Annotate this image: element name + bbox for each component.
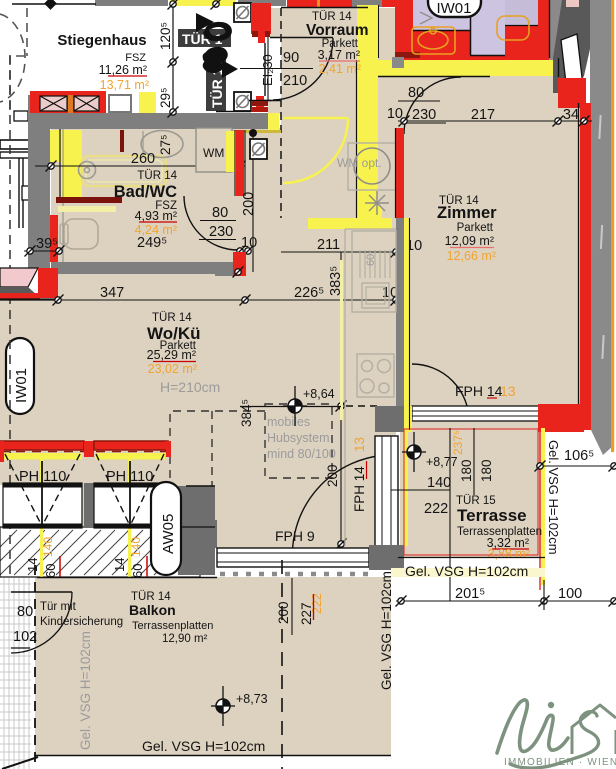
svg-text:EI₂30: EI₂30 bbox=[260, 54, 275, 86]
svg-text:10: 10 bbox=[241, 235, 257, 251]
svg-text:230: 230 bbox=[209, 224, 233, 240]
svg-text:Parkett: Parkett bbox=[457, 222, 494, 234]
svg-text:Hubsystem: Hubsystem bbox=[267, 431, 330, 445]
svg-text:Bad/WC: Bad/WC bbox=[114, 183, 177, 201]
svg-text:Zimmer: Zimmer bbox=[437, 204, 497, 222]
svg-text:211: 211 bbox=[317, 237, 340, 253]
svg-text:Vorraum: Vorraum bbox=[306, 22, 369, 39]
svg-text:Kindersicherung: Kindersicherung bbox=[40, 616, 123, 628]
svg-text:222: 222 bbox=[310, 593, 324, 614]
svg-text:90: 90 bbox=[283, 50, 299, 66]
svg-text:Gel. VSG H=102cm: Gel. VSG H=102cm bbox=[546, 440, 561, 555]
svg-text:12,66 m²: 12,66 m² bbox=[447, 249, 496, 263]
svg-text:27⁵: 27⁵ bbox=[158, 134, 173, 155]
svg-text:39⁵: 39⁵ bbox=[36, 236, 58, 252]
svg-text:13,71 m²: 13,71 m² bbox=[100, 78, 149, 92]
svg-text:TÜR 14: TÜR 14 bbox=[152, 312, 192, 324]
svg-text:+8,64: +8,64 bbox=[303, 387, 335, 401]
svg-text:60: 60 bbox=[43, 564, 58, 578]
svg-text:80: 80 bbox=[212, 205, 228, 221]
svg-text:140: 140 bbox=[427, 475, 451, 491]
svg-text:100: 100 bbox=[558, 586, 582, 602]
svg-text:102: 102 bbox=[13, 629, 37, 645]
svg-text:FPH 9: FPH 9 bbox=[275, 528, 315, 544]
svg-text:201⁵: 201⁵ bbox=[455, 586, 485, 602]
svg-text:12,90 m²: 12,90 m² bbox=[162, 633, 208, 645]
svg-text:180: 180 bbox=[479, 459, 494, 482]
svg-text:222: 222 bbox=[424, 501, 448, 517]
svg-text:FPH 14: FPH 14 bbox=[455, 383, 503, 399]
svg-text:IW01: IW01 bbox=[13, 368, 30, 403]
svg-text:3,17 m²: 3,17 m² bbox=[318, 48, 360, 62]
svg-text:14: 14 bbox=[25, 558, 40, 572]
svg-text:Tür mit: Tür mit bbox=[40, 601, 77, 613]
svg-text:60: 60 bbox=[365, 254, 377, 266]
svg-text:29⁵: 29⁵ bbox=[158, 87, 173, 108]
svg-text:AW05: AW05 bbox=[160, 514, 177, 554]
svg-text:Gel. VSG H=102cm: Gel. VSG H=102cm bbox=[78, 631, 93, 750]
svg-text:60: 60 bbox=[130, 564, 145, 578]
svg-text:FPH 14: FPH 14 bbox=[352, 466, 367, 512]
svg-text:IMMOBILIEN · WIEN: IMMOBILIEN · WIEN bbox=[504, 757, 616, 768]
svg-text:H=210cm: H=210cm bbox=[160, 379, 220, 395]
svg-text:11,26 m²: 11,26 m² bbox=[99, 63, 147, 77]
svg-text:237⁵: 237⁵ bbox=[451, 430, 465, 455]
svg-text:Terrassenplatten: Terrassenplatten bbox=[132, 620, 213, 632]
svg-text:Terrasse: Terrasse bbox=[457, 506, 527, 525]
svg-text:200: 200 bbox=[276, 601, 291, 624]
svg-text:13: 13 bbox=[352, 437, 367, 452]
svg-text:12,09 m²: 12,09 m² bbox=[445, 234, 494, 248]
svg-text:217: 217 bbox=[471, 107, 495, 123]
svg-text:Gel. VSG H=102cm: Gel. VSG H=102cm bbox=[405, 563, 528, 579]
svg-text:TÜR 14: TÜR 14 bbox=[137, 170, 177, 182]
svg-text:80: 80 bbox=[408, 85, 424, 101]
svg-text:3,88 m²: 3,88 m² bbox=[488, 547, 530, 561]
svg-text:mobiles: mobiles bbox=[267, 415, 310, 429]
svg-text:13: 13 bbox=[500, 383, 516, 399]
svg-text:Balkon: Balkon bbox=[129, 602, 176, 618]
svg-text:25,29 m²: 25,29 m² bbox=[147, 348, 196, 362]
svg-text:PH 110: PH 110 bbox=[106, 469, 153, 485]
svg-text:106⁵: 106⁵ bbox=[564, 448, 594, 464]
svg-text:200: 200 bbox=[325, 464, 340, 487]
svg-text:140: 140 bbox=[129, 537, 143, 557]
svg-text:210: 210 bbox=[283, 73, 307, 89]
svg-text:347: 347 bbox=[100, 285, 124, 301]
svg-text:200: 200 bbox=[241, 192, 257, 216]
svg-text:4,93 m²: 4,93 m² bbox=[135, 209, 177, 223]
svg-text:249⁵: 249⁵ bbox=[137, 235, 167, 251]
svg-text:PH 110: PH 110 bbox=[19, 469, 66, 485]
svg-text:WM: WM bbox=[203, 146, 224, 160]
svg-text:180: 180 bbox=[459, 459, 474, 482]
svg-text:mind 80/100: mind 80/100 bbox=[267, 447, 336, 461]
svg-text:Stiegenhaus: Stiegenhaus bbox=[57, 32, 146, 49]
svg-text:23,02 m²: 23,02 m² bbox=[148, 362, 197, 376]
svg-text:140: 140 bbox=[41, 537, 55, 557]
svg-text:2,41 m²: 2,41 m² bbox=[319, 62, 361, 76]
svg-text:WM opt.: WM opt. bbox=[337, 156, 382, 170]
svg-text:Gel. VSG H=102cm: Gel. VSG H=102cm bbox=[379, 571, 394, 690]
svg-text:260: 260 bbox=[131, 151, 155, 167]
svg-text:384⁵: 384⁵ bbox=[239, 399, 254, 427]
svg-text:+8,73: +8,73 bbox=[236, 692, 268, 706]
svg-text:34: 34 bbox=[563, 107, 579, 123]
svg-text:Gel. VSG H=102cm: Gel. VSG H=102cm bbox=[142, 738, 265, 754]
svg-text:IW01: IW01 bbox=[436, 0, 471, 17]
svg-text:14: 14 bbox=[112, 558, 127, 572]
svg-text:+8,77: +8,77 bbox=[426, 455, 458, 469]
svg-text:120⁵: 120⁵ bbox=[158, 22, 173, 50]
svg-text:226⁵: 226⁵ bbox=[294, 285, 324, 301]
svg-text:80: 80 bbox=[17, 604, 33, 620]
